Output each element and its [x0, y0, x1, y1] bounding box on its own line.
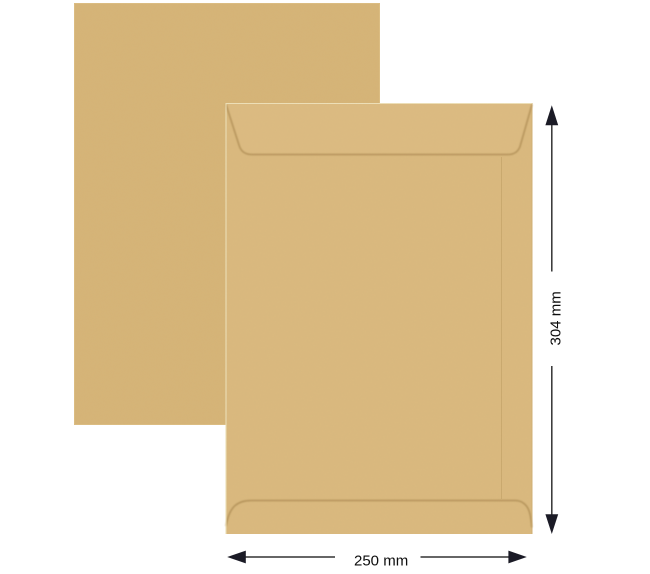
svg-text:304 mm: 304 mm — [548, 291, 565, 345]
svg-text:250 mm: 250 mm — [354, 553, 408, 570]
